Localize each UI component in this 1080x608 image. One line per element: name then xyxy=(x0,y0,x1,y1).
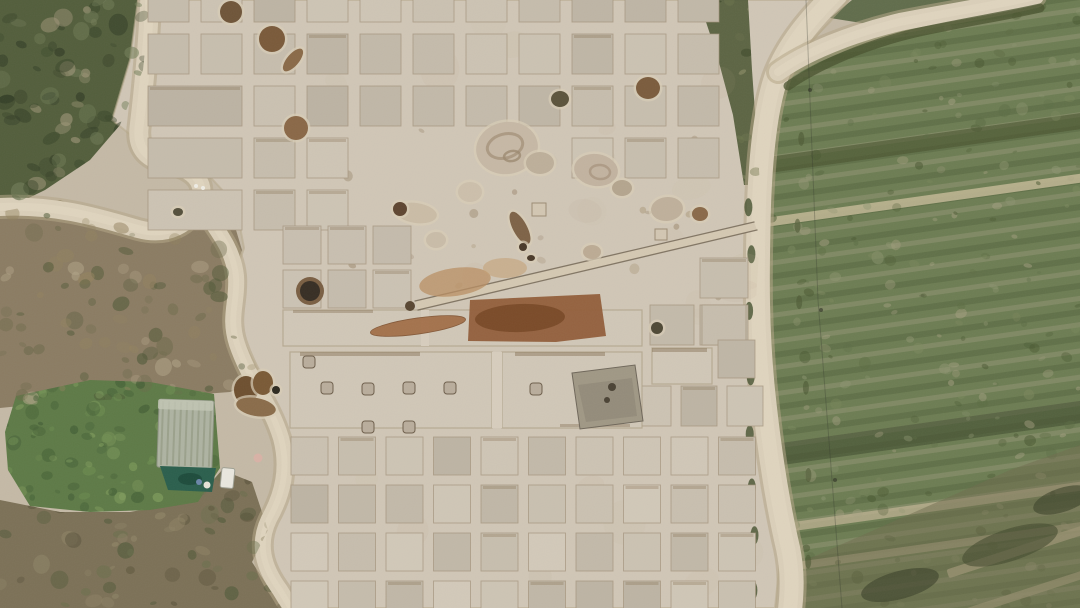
film-grain-overlay xyxy=(0,0,1080,608)
aerial-photo-archaeological-excavation: Aerial drone photograph of an archaeolog… xyxy=(0,0,1080,608)
aerial-photo-canvas xyxy=(0,0,1080,608)
